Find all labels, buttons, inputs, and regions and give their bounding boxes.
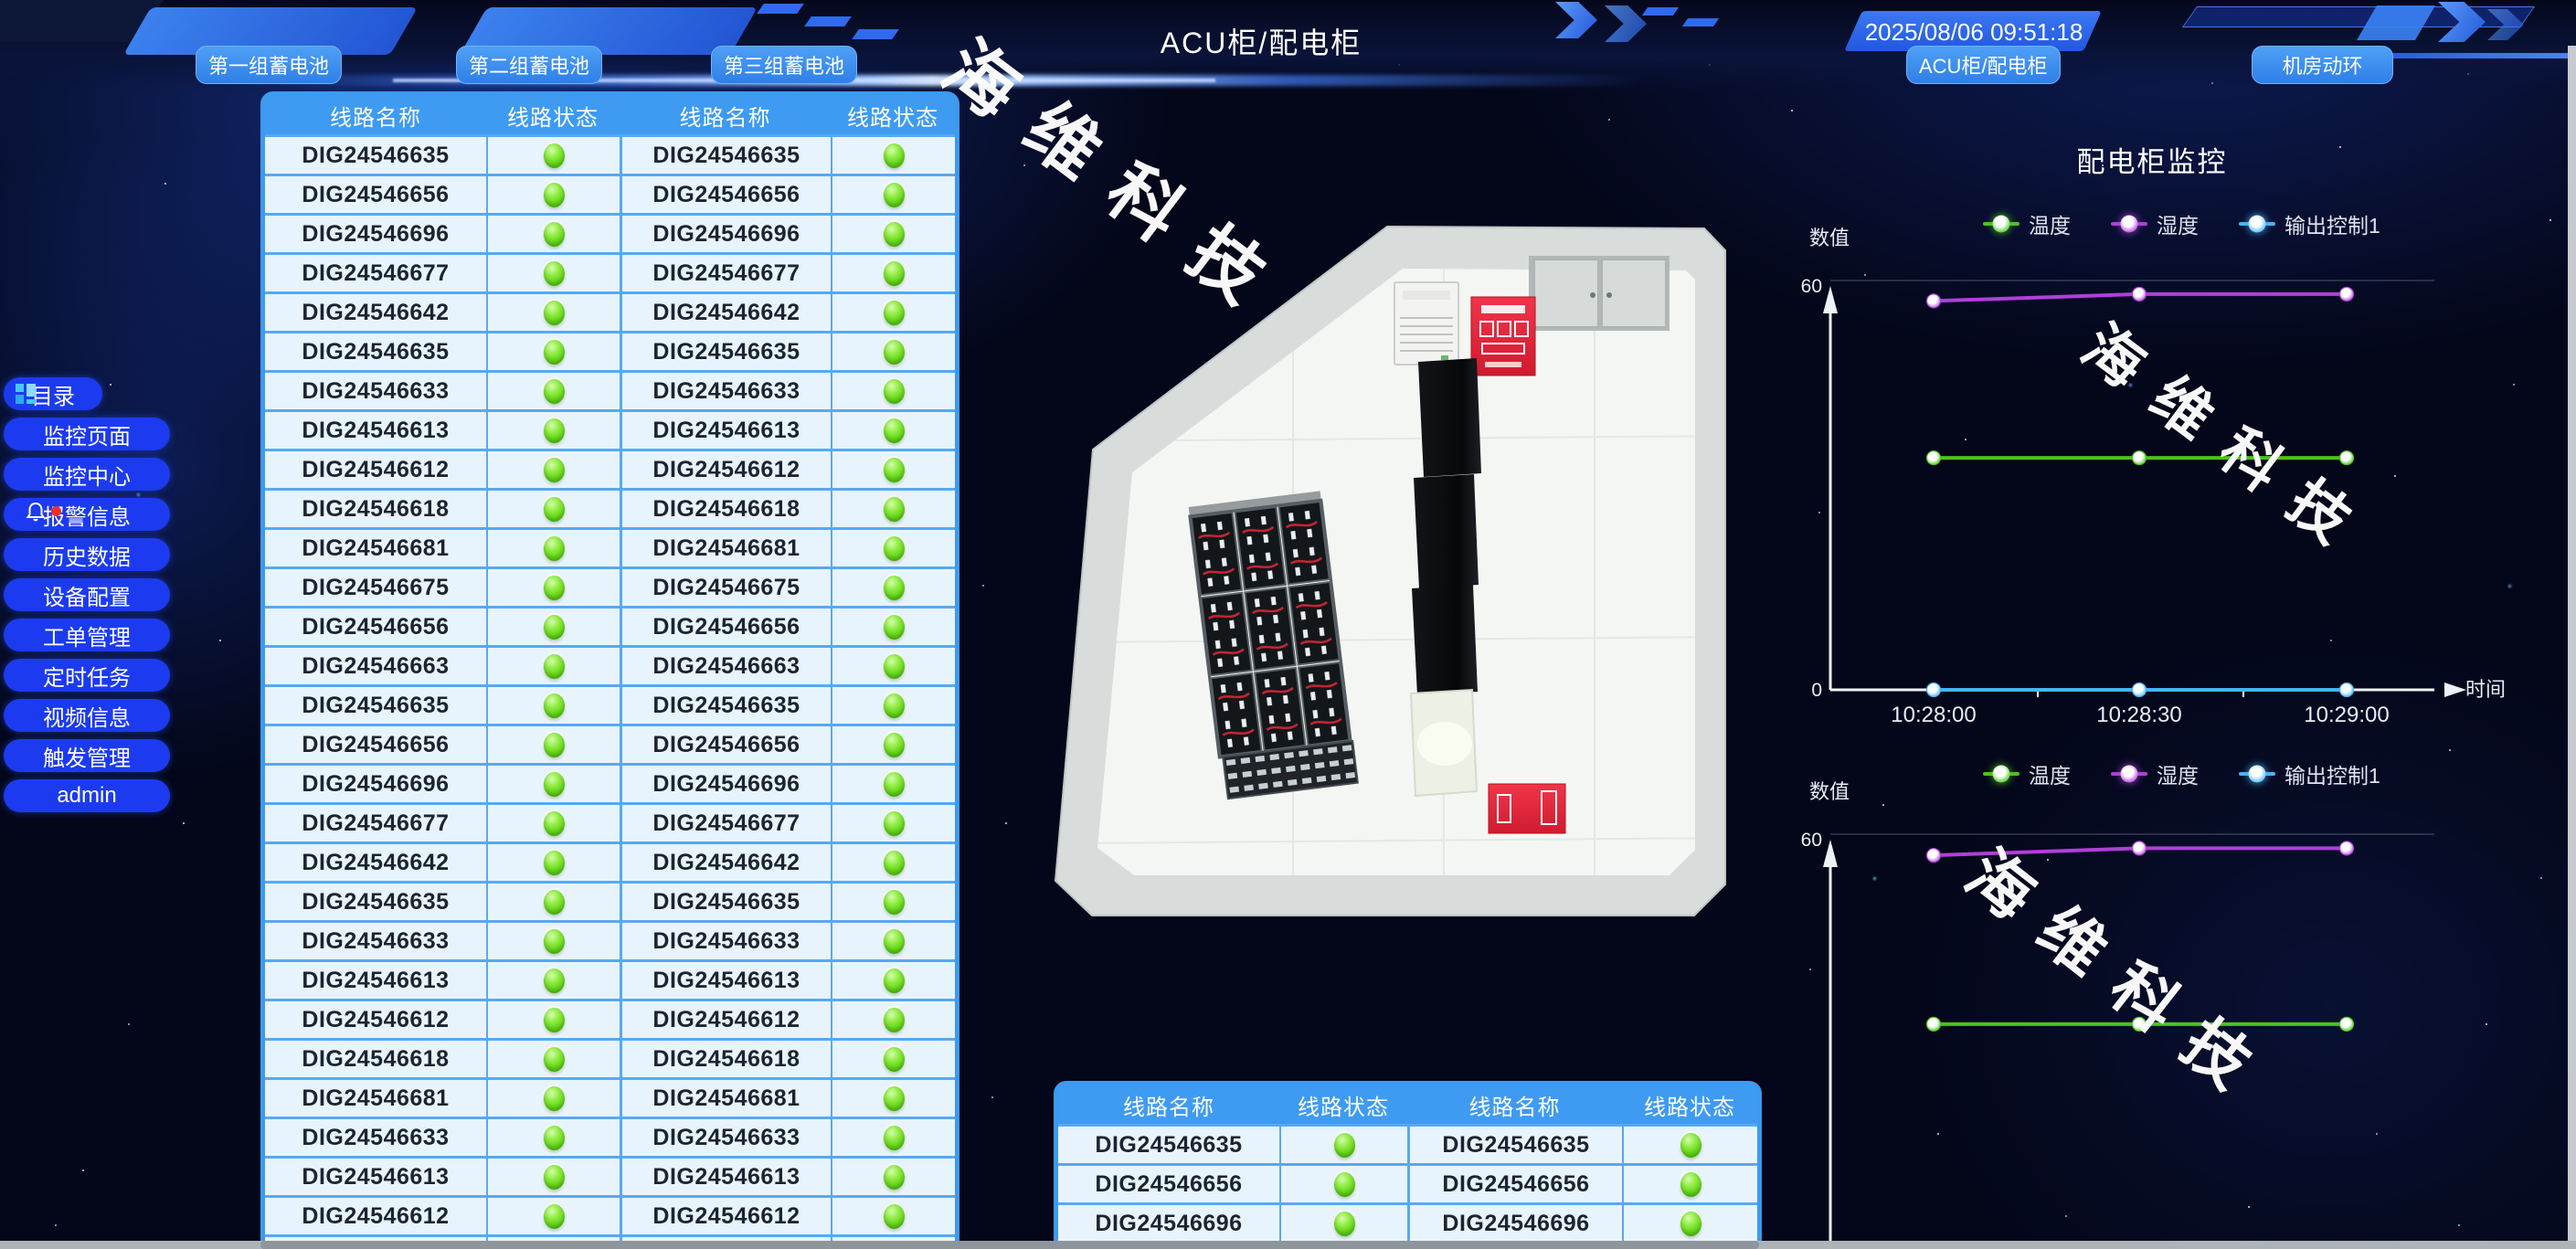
line-status-cell: [486, 569, 620, 606]
line-name-cell: DIG24546696: [620, 216, 831, 252]
line-status-cell: [486, 294, 620, 331]
sidebar-item-label: admin: [57, 783, 116, 809]
line-name-cell: DIG24546613: [265, 1159, 486, 1195]
legend-label: 温度: [2029, 758, 2071, 789]
server-cabinet: [1414, 474, 1479, 588]
line-name-cell: DIG24546696: [265, 766, 486, 802]
table-row: DIG24546656DIG24546656: [1058, 1166, 1757, 1202]
status-dot-green: [544, 261, 565, 286]
legend-orb-icon: [2121, 216, 2138, 233]
sidebar-item-trigger-manage[interactable]: 触发管理: [4, 739, 170, 772]
data-point[interactable]: [2133, 451, 2147, 465]
line-status-cell: [486, 805, 620, 841]
column-header: 线路状态: [486, 96, 620, 134]
legend-orb-icon: [2121, 766, 2138, 783]
status-dot-green: [884, 929, 905, 954]
line-name-cell: DIG24546681: [265, 1080, 486, 1117]
line-name-cell: DIG24546663: [265, 648, 486, 684]
status-dot-green: [544, 576, 565, 600]
line-name-cell: DIG24546618: [620, 491, 831, 527]
header-decoration: [1682, 18, 1719, 26]
column-header: 线路状态: [831, 96, 955, 134]
line-status-cell: [831, 884, 955, 920]
line-status-cell: [486, 137, 620, 174]
table-row: DIG24546613DIG24546613: [265, 1159, 955, 1195]
status-dot-green: [884, 1204, 905, 1229]
sidebar-item-label: 监控页面: [43, 418, 131, 450]
line-status-cell: [1279, 1127, 1407, 1163]
column-header: 线路名称: [620, 96, 831, 134]
x-tick-label: 10:28:00: [1891, 703, 1976, 727]
line-status-cell: [1279, 1205, 1407, 1242]
line-status-cell: [486, 412, 620, 449]
status-dot-green: [544, 497, 565, 522]
data-point[interactable]: [2340, 451, 2354, 465]
legend-orb-icon: [2249, 766, 2266, 783]
line-name-cell: DIG24546613: [620, 962, 831, 999]
legend-orb-icon: [2249, 216, 2266, 233]
column-header: 线路状态: [1622, 1085, 1757, 1124]
line-status-cell: [831, 1041, 955, 1077]
line-status-cell: [1279, 1166, 1407, 1202]
legend-item[interactable]: 温度: [1983, 758, 2071, 789]
legend-orb-icon: [1993, 216, 2010, 233]
line-name-cell: DIG24546613: [620, 1159, 831, 1195]
y-axis-arrow-icon: [1823, 286, 1838, 313]
status-dot-green: [884, 536, 905, 561]
line-status-cell: [831, 216, 955, 252]
line-status-cell: [831, 1001, 955, 1038]
line-name-cell: DIG24546613: [265, 412, 486, 449]
status-dot-green: [544, 733, 565, 757]
status-dot-green: [884, 458, 905, 482]
status-dot-green: [544, 1008, 565, 1032]
line-status-cell: [831, 687, 955, 724]
line-name-cell: DIG24546656: [620, 726, 831, 763]
status-dot-green: [544, 183, 565, 207]
alert-dot-icon: [51, 506, 61, 516]
table-header-row: 线路名称线路状态线路名称线路状态: [265, 96, 955, 134]
status-dot-green: [884, 615, 905, 640]
line-name-cell: DIG24546635: [1058, 1127, 1279, 1163]
status-dot-green: [884, 1008, 905, 1032]
line-status-cell: [486, 530, 620, 566]
line-name-cell: DIG24546633: [620, 373, 831, 409]
table-row: DIG24546696DIG24546696: [265, 766, 955, 802]
line-name-cell: DIG24546635: [620, 333, 831, 370]
sidebar-item-history-data[interactable]: 历史数据: [4, 538, 170, 571]
line-status-cell: [831, 530, 955, 566]
data-point[interactable]: [1927, 451, 1941, 465]
line-status-cell: [1622, 1166, 1757, 1202]
circuit-status-table-main: 线路名称线路状态线路名称线路状态 DIG24546635DIG24546635D…: [260, 91, 959, 1249]
line-chart-2[interactable]: 数值60: [1782, 740, 2576, 1249]
status-dot-green: [1680, 1172, 1701, 1197]
line-status-cell: [831, 412, 955, 449]
line-status-cell: [831, 373, 955, 409]
sidebar-item-label: 目录: [31, 378, 75, 410]
status-dot-green: [884, 261, 905, 286]
status-dot-green: [884, 497, 905, 522]
data-point[interactable]: [1927, 1017, 1941, 1031]
battery-group-2-button[interactable]: 第二组蓄电池: [456, 46, 602, 84]
status-dot-green: [544, 458, 565, 482]
room-env-button[interactable]: 机房动环: [2252, 46, 2393, 84]
line-status-cell: [486, 884, 620, 920]
line-name-cell: DIG24546681: [620, 530, 831, 566]
line-name-cell: DIG24546656: [1058, 1166, 1279, 1202]
sidebar-item-label: 视频信息: [43, 700, 131, 732]
data-point[interactable]: [2133, 287, 2147, 301]
legend-line-icon: [1983, 222, 2019, 226]
line-name-cell: DIG24546656: [620, 609, 831, 645]
status-dot-green: [884, 1086, 905, 1111]
menu-grid-icon: [15, 383, 37, 405]
legend-line-icon: [2111, 772, 2147, 776]
line-status-cell: [486, 1198, 620, 1234]
y-axis-title: 数值: [1809, 227, 1850, 249]
legend-item[interactable]: 湿度: [2111, 208, 2199, 239]
chart-legend: 温度湿度输出控制1: [1983, 208, 2380, 239]
line-name-cell: DIG24546696: [265, 216, 486, 252]
status-dot-green: [544, 418, 565, 443]
sidebar-item-menu[interactable]: 目录: [4, 377, 102, 410]
status-dot-green: [544, 379, 565, 404]
line-name-cell: DIG24546633: [620, 1119, 831, 1156]
line-name-cell: DIG24546612: [620, 1001, 831, 1038]
line-name-cell: DIG24546635: [1407, 1127, 1622, 1163]
status-dot-green: [544, 811, 565, 836]
status-dot-green: [1334, 1212, 1355, 1236]
line-name-cell: DIG24546642: [620, 294, 831, 331]
data-point[interactable]: [1927, 683, 1941, 697]
line-name-cell: DIG24546618: [265, 491, 486, 527]
status-dot-green: [544, 1126, 565, 1150]
table-body: DIG24546635DIG24546635DIG24546656DIG2454…: [1058, 1127, 1757, 1249]
header-decoration: [852, 29, 899, 39]
line-status-cell: [831, 962, 955, 999]
sidebar-item-monitor-page[interactable]: 监控页面: [4, 418, 170, 450]
line-name-cell: DIG24546635: [620, 137, 831, 174]
status-dot-green: [544, 654, 565, 679]
legend-label: 湿度: [2157, 208, 2199, 239]
machine-room-3d-scene: [1019, 210, 1768, 1078]
line-status-cell: [486, 373, 620, 409]
status-dot-green: [544, 1165, 565, 1190]
battery-group-3-button[interactable]: 第三组蓄电池: [711, 46, 857, 84]
status-dot-green: [884, 301, 905, 325]
sidebar-item-label: 定时任务: [43, 660, 131, 692]
legend-label: 温度: [2029, 208, 2071, 239]
machine-room-3d-view[interactable]: [1019, 210, 1768, 1078]
line-name-cell: DIG24546618: [265, 1041, 486, 1077]
white-cabinet: [1411, 690, 1477, 796]
data-point[interactable]: [2133, 841, 2147, 855]
line-name-cell: DIG24546635: [265, 687, 486, 724]
line-status-cell: [486, 726, 620, 763]
data-point[interactable]: [1927, 849, 1941, 863]
line-status-cell: [831, 255, 955, 291]
line-name-cell: DIG24546618: [620, 1041, 831, 1077]
status-dot-green: [1680, 1133, 1701, 1158]
acu-cabinet-button[interactable]: ACU柜/配电柜: [1906, 46, 2061, 84]
sidebar-item-label: 工单管理: [43, 619, 131, 651]
table-row: DIG24546635DIG24546635: [265, 884, 955, 920]
sidebar-menu: 目录监控页面监控中心报警信息历史数据设备配置工单管理定时任务视频信息触发管理ad…: [4, 377, 170, 812]
table-row: DIG24546696DIG24546696: [265, 216, 955, 252]
x-tick-label: 10:28:30: [2096, 703, 2181, 727]
line-name-cell: DIG24546633: [265, 373, 486, 409]
sidebar-item-work-order[interactable]: 工单管理: [4, 619, 170, 651]
line-name-cell: DIG24546612: [265, 1198, 486, 1234]
line-status-cell: [831, 1159, 955, 1195]
line-name-cell: DIG24546642: [620, 844, 831, 881]
status-dot-green: [884, 576, 905, 600]
line-status-cell: [486, 255, 620, 291]
table-row: DIG24546612DIG24546612: [265, 1198, 955, 1234]
line-name-cell: DIG24546642: [265, 294, 486, 331]
sidebar-item-monitor-center[interactable]: 监控中心: [4, 458, 170, 491]
data-point[interactable]: [1927, 294, 1941, 308]
status-dot-green: [884, 693, 905, 718]
line-name-cell: DIG24546635: [620, 884, 831, 920]
table-row: DIG24546618DIG24546618: [265, 1041, 955, 1077]
data-point[interactable]: [2340, 841, 2354, 855]
line-status-cell: [831, 137, 955, 174]
line-status-cell: [486, 766, 620, 802]
status-dot-green: [884, 340, 905, 365]
line-status-cell: [831, 844, 955, 881]
chart-legend: 温度湿度输出控制1: [1983, 758, 2380, 789]
x-axis-title: 时间: [2465, 678, 2506, 701]
y-tick-0: 0: [1811, 680, 1822, 701]
line-name-cell: DIG24546675: [265, 569, 486, 606]
page-title: ACU柜/配电柜: [1078, 20, 1444, 62]
table-row: DIG24546635DIG24546635: [265, 687, 955, 724]
status-dot-green: [544, 1204, 565, 1229]
line-name-cell: DIG24546677: [620, 255, 831, 291]
data-point[interactable]: [2340, 683, 2354, 697]
sidebar-item-video-info[interactable]: 视频信息: [4, 699, 170, 732]
status-dot-green: [544, 772, 565, 797]
line-status-cell: [486, 176, 620, 213]
status-dot-green: [884, 969, 905, 993]
chevron-icon: [1605, 5, 1647, 42]
sidebar-item-device-config[interactable]: 设备配置: [4, 578, 170, 611]
status-dot-green: [544, 340, 565, 365]
table-row: DIG24546633DIG24546633: [265, 923, 955, 959]
line-name-cell: DIG24546681: [620, 1080, 831, 1117]
line-name-cell: DIG24546633: [265, 923, 486, 959]
legend-item[interactable]: 湿度: [2111, 758, 2199, 789]
data-point[interactable]: [2133, 683, 2147, 697]
status-dot-green: [544, 851, 565, 875]
table-row: DIG24546681DIG24546681: [265, 530, 955, 566]
line-name-cell: DIG24546677: [265, 255, 486, 291]
y-tick-60: 60: [1801, 830, 1822, 851]
line-status-cell: [1622, 1127, 1757, 1163]
status-dot-green: [884, 654, 905, 679]
timestamp: 2025/08/06 09:51:18: [1864, 18, 2083, 47]
line-status-cell: [831, 451, 955, 488]
status-dot-green: [884, 183, 905, 207]
status-dot-green: [884, 379, 905, 404]
status-dot-green: [544, 301, 565, 325]
legend-item[interactable]: 输出控制1: [2239, 758, 2380, 789]
status-dot-green: [544, 222, 565, 247]
line-name-cell: DIG24546663: [620, 648, 831, 684]
line-status-cell: [486, 216, 620, 252]
server-cabinet: [1412, 585, 1478, 695]
line-status-cell: [831, 805, 955, 841]
line-name-cell: DIG24546635: [265, 884, 486, 920]
status-dot-green: [544, 890, 565, 915]
status-dot-green: [884, 222, 905, 247]
legend-label: 湿度: [2157, 758, 2199, 789]
status-dot-green: [884, 851, 905, 875]
status-dot-green: [544, 143, 565, 168]
sidebar-item-label: 设备配置: [43, 579, 131, 611]
line-name-cell: DIG24546612: [620, 451, 831, 488]
line-status-cell: [831, 1119, 955, 1156]
line-status-cell: [831, 923, 955, 959]
status-dot-green: [884, 418, 905, 443]
circuit-status-table-bottom: 线路名称线路状态线路名称线路状态 DIG24546635DIG24546635D…: [1054, 1081, 1762, 1249]
line-status-cell: [831, 609, 955, 645]
status-dot-green: [544, 969, 565, 993]
column-header: 线路状态: [1279, 1085, 1407, 1124]
battery-group-1-button[interactable]: 第一组蓄电池: [196, 46, 342, 84]
line-name-cell: DIG24546677: [620, 805, 831, 841]
line-status-cell: [831, 569, 955, 606]
line-status-cell: [486, 1159, 620, 1195]
line-status-cell: [486, 1080, 620, 1117]
legend-item[interactable]: 温度: [1983, 208, 2071, 239]
table-row: DIG24546681DIG24546681: [265, 1080, 955, 1117]
line-name-cell: DIG24546613: [265, 962, 486, 999]
table-row: DIG24546633DIG24546633: [265, 1119, 955, 1156]
line-name-cell: DIG24546612: [265, 451, 486, 488]
ac-unit: [1394, 282, 1458, 365]
status-dot-green: [544, 929, 565, 954]
line-status-cell: [486, 333, 620, 370]
sidebar-item-label: 触发管理: [43, 740, 131, 772]
table-row: DIG24546635DIG24546635: [1058, 1127, 1757, 1163]
table-row: DIG24546696DIG24546696: [1058, 1205, 1757, 1242]
line-status-cell: [486, 923, 620, 959]
line-status-cell: [486, 648, 620, 684]
table-row: DIG24546642DIG24546642: [265, 844, 955, 881]
line-name-cell: DIG24546656: [265, 609, 486, 645]
header-decoration: [757, 4, 804, 14]
legend-item[interactable]: 输出控制1: [2239, 208, 2380, 239]
table-row: DIG24546613DIG24546613: [265, 412, 955, 449]
data-point[interactable]: [2133, 1017, 2147, 1031]
bell-icon: [24, 502, 48, 525]
status-dot-green: [884, 1165, 905, 1190]
line-name-cell: DIG24546656: [265, 176, 486, 213]
line-name-cell: DIG24546696: [1058, 1205, 1279, 1242]
line-status-cell: [1622, 1205, 1757, 1242]
line-status-cell: [831, 176, 955, 213]
status-dot-green: [884, 143, 905, 168]
x-tick-label: 10:29:00: [2304, 703, 2389, 727]
status-dot-green: [544, 536, 565, 561]
sidebar-item-label: 监控中心: [43, 459, 131, 491]
table-row: DIG24546613DIG24546613: [265, 962, 955, 999]
double-door: [1529, 256, 1670, 331]
table-body: DIG24546635DIG24546635DIG24546656DIG2454…: [265, 137, 955, 1249]
line-name-cell: DIG24546633: [620, 923, 831, 959]
legend-orb-icon: [1993, 766, 2010, 783]
column-header: 线路名称: [1058, 1085, 1279, 1124]
status-dot-green: [544, 693, 565, 718]
line-status-cell: [486, 1041, 620, 1077]
dashboard-screen: ACU柜/配电柜 2025/08/06 09:51:18 目录监控页面监控中心报…: [0, 0, 2576, 1249]
horizontal-scrollbar-thumb[interactable]: [260, 1241, 1759, 1249]
line-status-cell: [831, 648, 955, 684]
vertical-scrollbar[interactable]: [2568, 46, 2576, 1241]
chart-title: 配电柜监控: [1956, 139, 2348, 180]
status-dot-green: [884, 1126, 905, 1150]
y-tick-60: 60: [1801, 276, 1822, 297]
y-axis-arrow-icon: [1823, 840, 1838, 867]
status-dot-green: [544, 1047, 565, 1072]
legend-line-icon: [2111, 222, 2147, 226]
legend-label: 输出控制1: [2284, 208, 2380, 239]
line-name-cell: DIG24546635: [620, 687, 831, 724]
status-dot-green: [884, 811, 905, 836]
data-point[interactable]: [2340, 1017, 2354, 1031]
table-row: DIG24546635DIG24546635: [265, 333, 955, 370]
line-name-cell: DIG24546656: [265, 726, 486, 763]
line-status-cell: [831, 491, 955, 527]
line-name-cell: DIG24546633: [265, 1119, 486, 1156]
legend-label: 输出控制1: [2284, 758, 2380, 789]
server-cabinet: [1418, 358, 1481, 477]
status-dot-green: [544, 615, 565, 640]
data-point[interactable]: [2340, 287, 2354, 301]
line-name-cell: DIG24546681: [265, 530, 486, 566]
line-status-cell: [486, 491, 620, 527]
table-header-row: 线路名称线路状态线路名称线路状态: [1058, 1085, 1757, 1124]
line-name-cell: DIG24546642: [265, 844, 486, 881]
column-header: 线路名称: [1407, 1085, 1622, 1124]
line-status-cell: [486, 1119, 620, 1156]
line-status-cell: [486, 962, 620, 999]
legend-line-icon: [2239, 772, 2275, 776]
status-dot-green: [884, 890, 905, 915]
header-decoration: [804, 16, 852, 26]
table-row: DIG24546677DIG24546677: [265, 255, 955, 291]
line-name-cell: DIG24546612: [265, 1001, 486, 1038]
x-axis-arrow-icon: [2444, 683, 2466, 697]
sidebar-item-alarm-info[interactable]: 报警信息: [4, 498, 170, 531]
table-row: DIG24546642DIG24546642: [265, 294, 955, 331]
line-name-cell: DIG24546612: [620, 1198, 831, 1234]
sidebar-item-admin[interactable]: admin: [4, 779, 170, 812]
y-axis-title: 数值: [1809, 780, 1850, 803]
legend-line-icon: [1983, 772, 2019, 776]
line-status-cell: [831, 726, 955, 763]
header-decoration: [1642, 7, 1679, 16]
fire-cabinet: [1471, 297, 1535, 376]
sidebar-item-scheduled-task[interactable]: 定时任务: [4, 659, 170, 692]
fire-cabinet: [1489, 784, 1565, 833]
line-status-cell: [831, 766, 955, 802]
line-status-cell: [831, 333, 955, 370]
table-row: DIG24546612DIG24546612: [265, 1001, 955, 1038]
